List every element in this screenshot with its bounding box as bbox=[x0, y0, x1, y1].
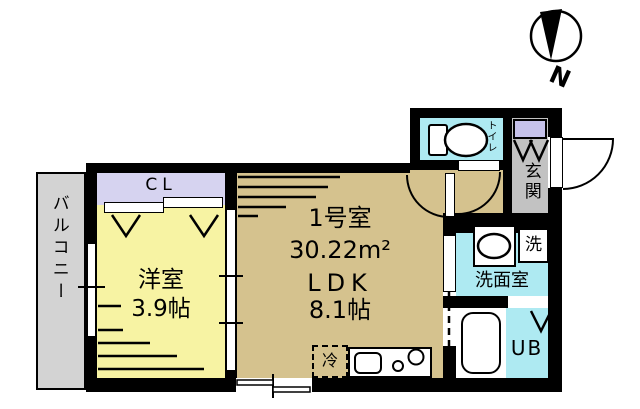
entrance-door-arc bbox=[563, 139, 613, 189]
toilet-label: トイレ bbox=[485, 120, 496, 153]
bottom-window-pane bbox=[273, 387, 310, 392]
bottom-window-pane bbox=[237, 380, 273, 385]
stove-burner-icon bbox=[409, 350, 424, 365]
entrance-folding-door-mark bbox=[514, 140, 532, 160]
toilet-bowl-icon bbox=[445, 124, 487, 156]
balcony-label: バルコニー bbox=[49, 194, 68, 304]
compass-north-label: N bbox=[545, 60, 575, 94]
ldk-name: LDK bbox=[237, 270, 443, 296]
stove-burner-icon bbox=[393, 361, 403, 371]
unit-bath-label: UB bbox=[506, 337, 548, 359]
ldk-size: 8.1帖 bbox=[237, 297, 443, 323]
washbasin-icon bbox=[478, 234, 510, 258]
western-room-size: 3.9帖 bbox=[97, 297, 225, 322]
unit-bath-door-mark bbox=[531, 311, 551, 331]
floor-plan: N bbox=[0, 0, 640, 409]
entrance-folding-door-mark bbox=[530, 140, 548, 160]
closet-folding-door-mark bbox=[112, 215, 140, 236]
ldk-area: 30.22m² bbox=[237, 237, 443, 263]
washroom-label: 洗面室 bbox=[456, 271, 548, 291]
ldk-unit-number: 1号室 bbox=[237, 205, 443, 231]
closet-folding-door-mark bbox=[190, 215, 218, 236]
western-room-name: 洋室 bbox=[97, 268, 225, 293]
compass-icon: N bbox=[531, 9, 581, 94]
refrigerator-label: 冷 bbox=[312, 352, 348, 370]
toilet-door-arc bbox=[458, 172, 500, 214]
closet-label: CL bbox=[97, 176, 225, 195]
entrance-label: 玄関 bbox=[521, 162, 540, 202]
washer-label: 洗 bbox=[518, 236, 549, 255]
